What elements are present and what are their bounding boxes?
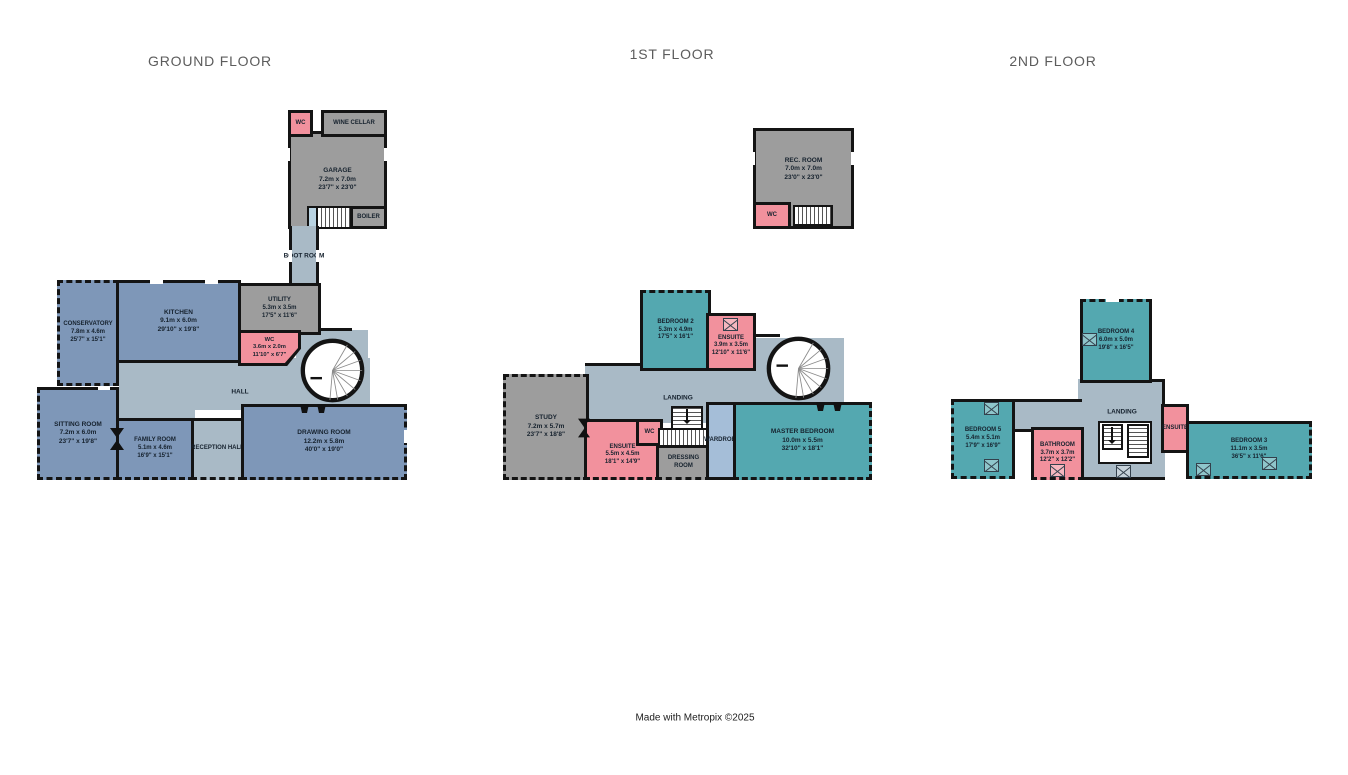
room-label-name: BEDROOM 3 [1230, 438, 1267, 446]
room-dim-metric: 11.1m x 3.5m [1230, 446, 1267, 454]
room-dim-metric: 6.0m x 5.0m [1098, 337, 1134, 345]
skylight-icon [1050, 464, 1065, 477]
room-label: ENSUITE [1162, 425, 1188, 433]
skylight-icon [984, 459, 999, 472]
room-dim-imperial: 17'9" x 16'9" [965, 443, 1001, 451]
skylight-icon [1082, 333, 1097, 346]
floor-title-second: 2ND FLOOR [1009, 53, 1096, 69]
room-dim-metric: 3.7m x 3.7m [1040, 450, 1075, 458]
skylight-icon [1116, 465, 1131, 478]
room-bedroom-5: BEDROOM 5 5.4m x 5.1m 17'9" x 16'9" [951, 399, 1015, 479]
wall-segment [1010, 399, 1082, 402]
room-label: BATHROOM 3.7m x 3.7m 12'2" x 12'2" [1040, 442, 1075, 465]
window-gap [1106, 299, 1119, 302]
room-label: BEDROOM 5 5.4m x 5.1m 17'9" x 16'9" [965, 427, 1001, 450]
credit-text: Made with Metropix ©2025 [635, 713, 754, 724]
room-dim-metric: 5.4m x 5.1m [965, 435, 1001, 443]
room-dim-imperial: 19'8" x 16'5" [1098, 345, 1134, 353]
stairs-direction-arrow [1111, 427, 1113, 443]
stairs-icon [1127, 424, 1149, 458]
skylight-icon [984, 402, 999, 415]
room-label-name: BATHROOM [1040, 442, 1075, 450]
room-label-name: BEDROOM 5 [965, 427, 1001, 435]
skylight-icon [1262, 457, 1277, 470]
wall-segment [1162, 379, 1165, 407]
floorplan-canvas: GROUND FLOOR GARAGE 7.2m x 7.0m 23'7" x … [0, 0, 1348, 775]
floor-second: 2ND FLOOR BEDROOM 4 6.0m x 5.0m 19'8" x … [0, 0, 1348, 775]
room-label-name: ENSUITE [1162, 425, 1188, 433]
room-label-landing: LANDING [1107, 409, 1137, 416]
room-ensuite: ENSUITE [1161, 404, 1189, 453]
skylight-icon [1196, 463, 1211, 476]
room-label: BEDROOM 4 6.0m x 5.0m 19'8" x 16'5" [1098, 329, 1134, 352]
room-label-name: BEDROOM 4 [1098, 329, 1134, 337]
